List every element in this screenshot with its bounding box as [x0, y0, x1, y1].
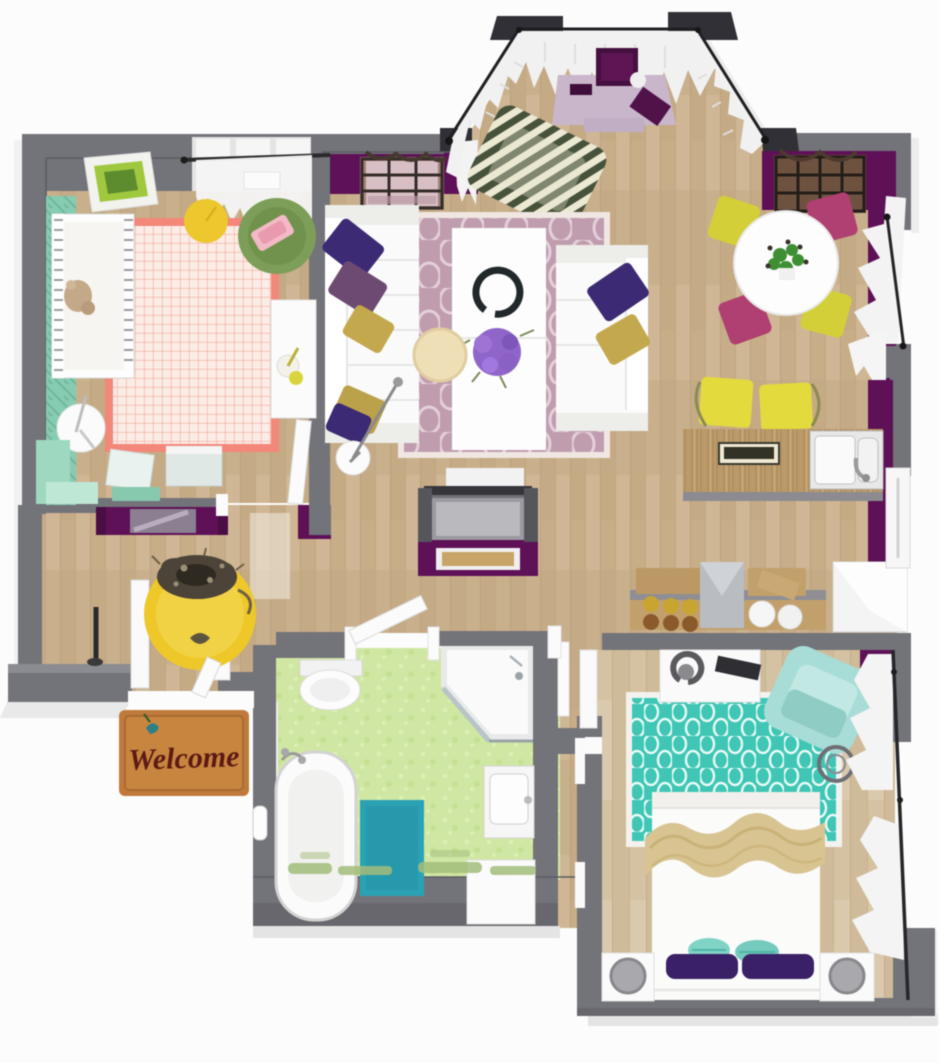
svg-text:Welcome: Welcome	[128, 740, 240, 777]
